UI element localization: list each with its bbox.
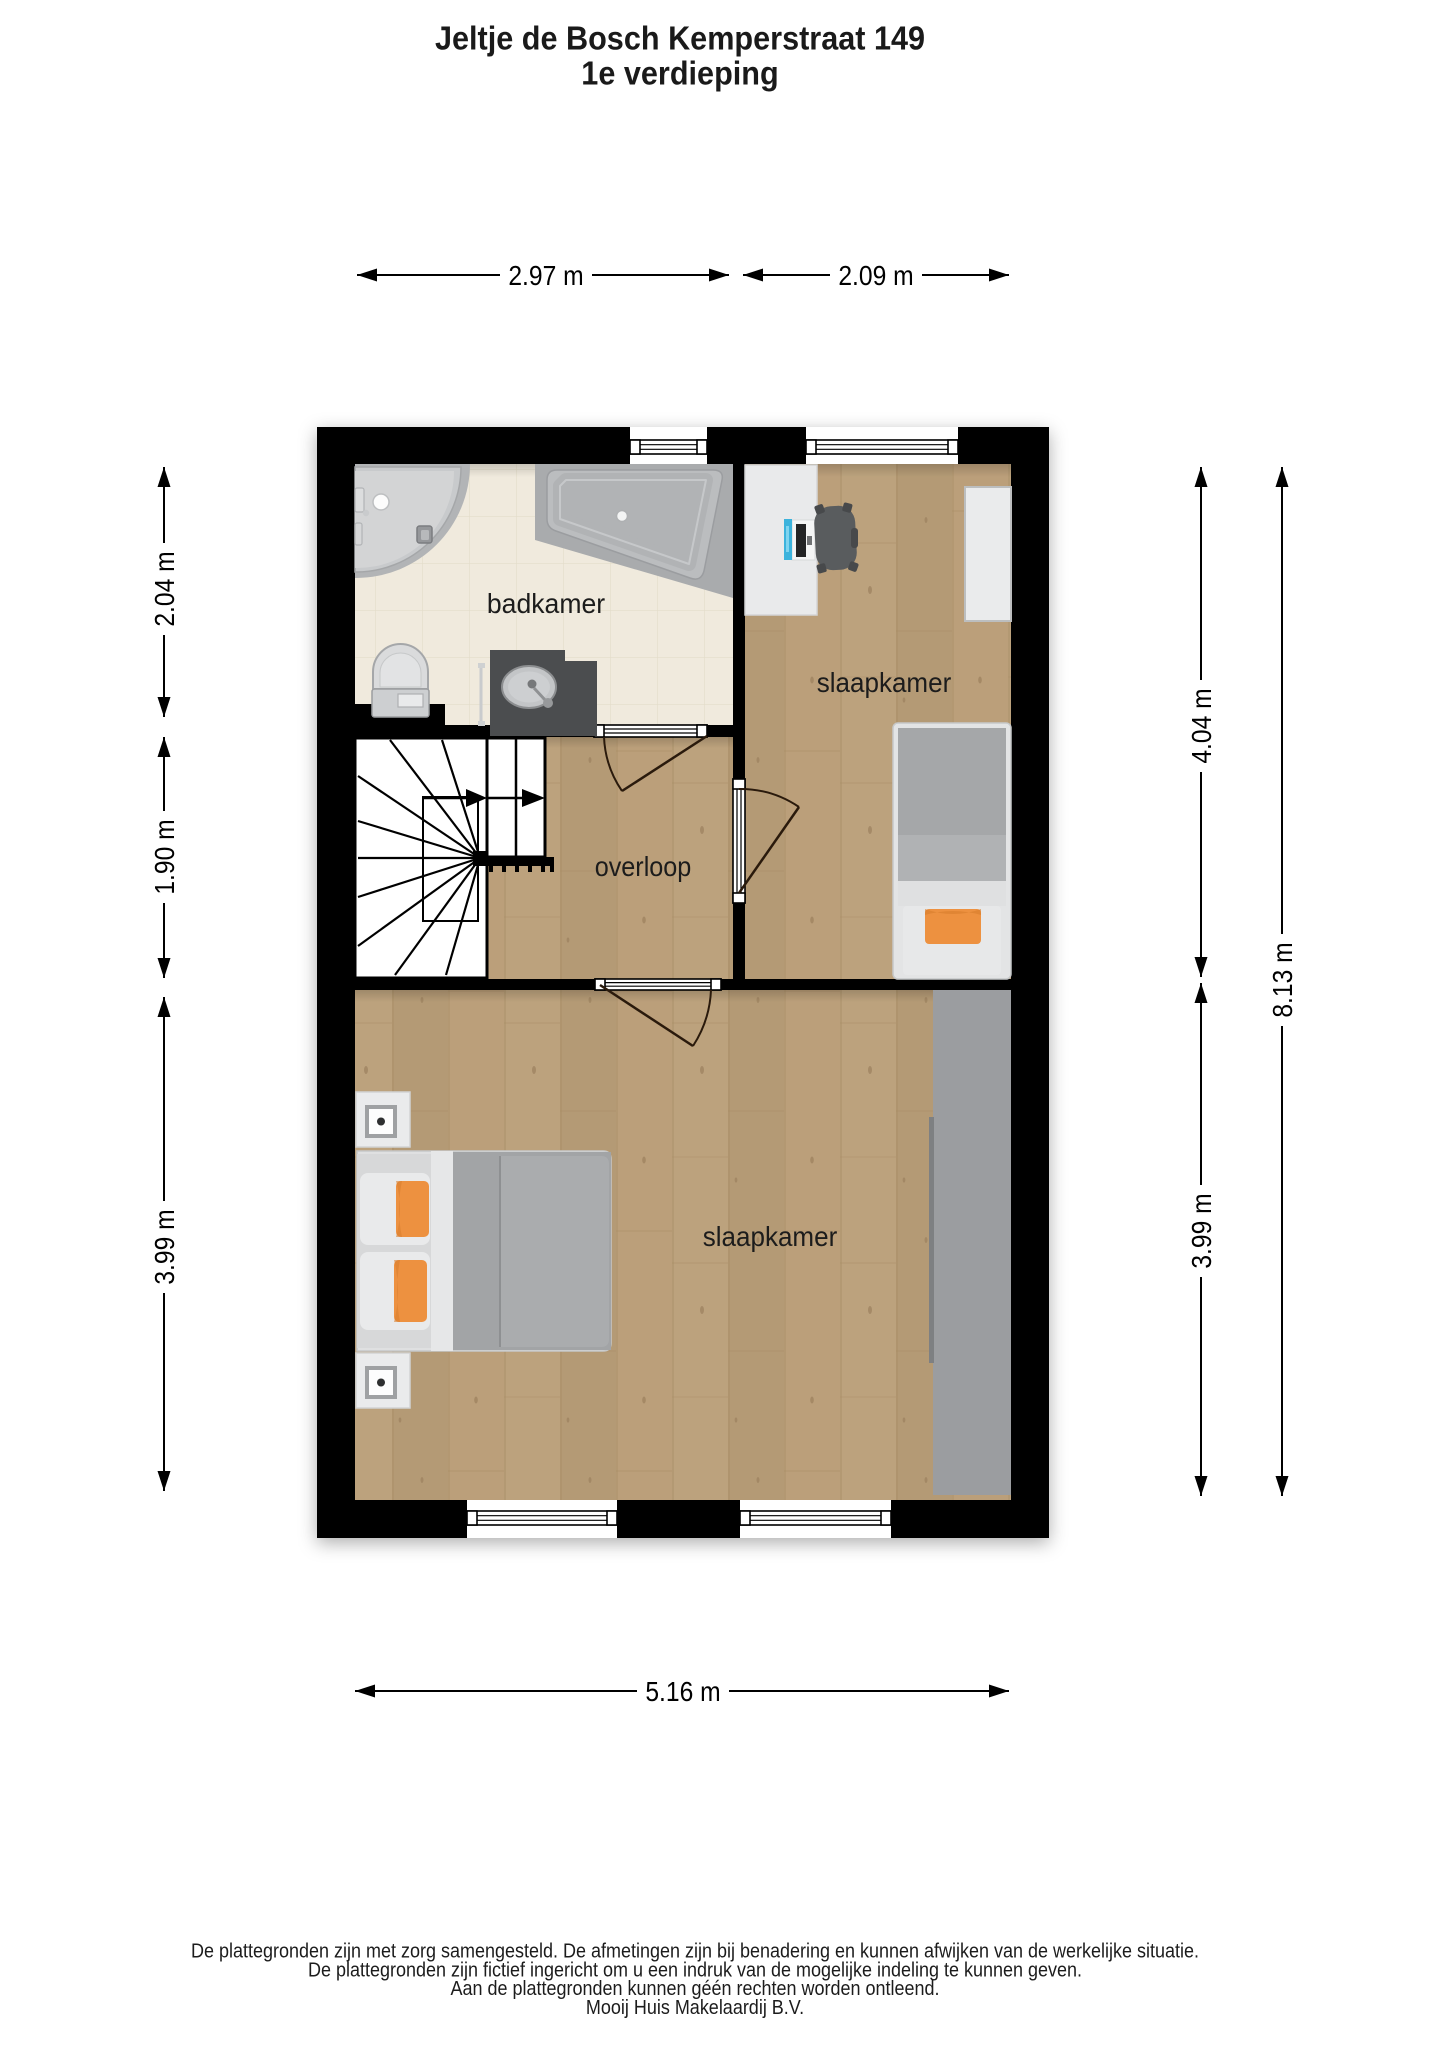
svg-text:overloop: overloop [595, 851, 692, 883]
svg-text:5.16 m: 5.16 m [645, 1676, 720, 1708]
svg-text:1.90 m: 1.90 m [149, 819, 181, 894]
svg-text:Mooij Huis Makelaardij B.V.: Mooij Huis Makelaardij B.V. [586, 1997, 804, 2019]
svg-text:3.99 m: 3.99 m [1186, 1193, 1218, 1268]
svg-text:2.97 m: 2.97 m [508, 260, 583, 292]
svg-text:8.13 m: 8.13 m [1267, 942, 1299, 1017]
svg-text:2.09 m: 2.09 m [838, 260, 913, 292]
svg-text:Jeltje de Bosch Kemperstraat 1: Jeltje de Bosch Kemperstraat 149 [435, 19, 925, 56]
svg-text:2.04 m: 2.04 m [149, 551, 181, 626]
svg-text:badkamer: badkamer [487, 587, 605, 619]
svg-text:slaapkamer: slaapkamer [703, 1221, 838, 1252]
svg-text:1e verdieping: 1e verdieping [581, 54, 778, 91]
svg-text:4.04 m: 4.04 m [1186, 688, 1218, 763]
svg-text:slaapkamer: slaapkamer [817, 667, 952, 698]
svg-text:3.99 m: 3.99 m [149, 1209, 181, 1284]
